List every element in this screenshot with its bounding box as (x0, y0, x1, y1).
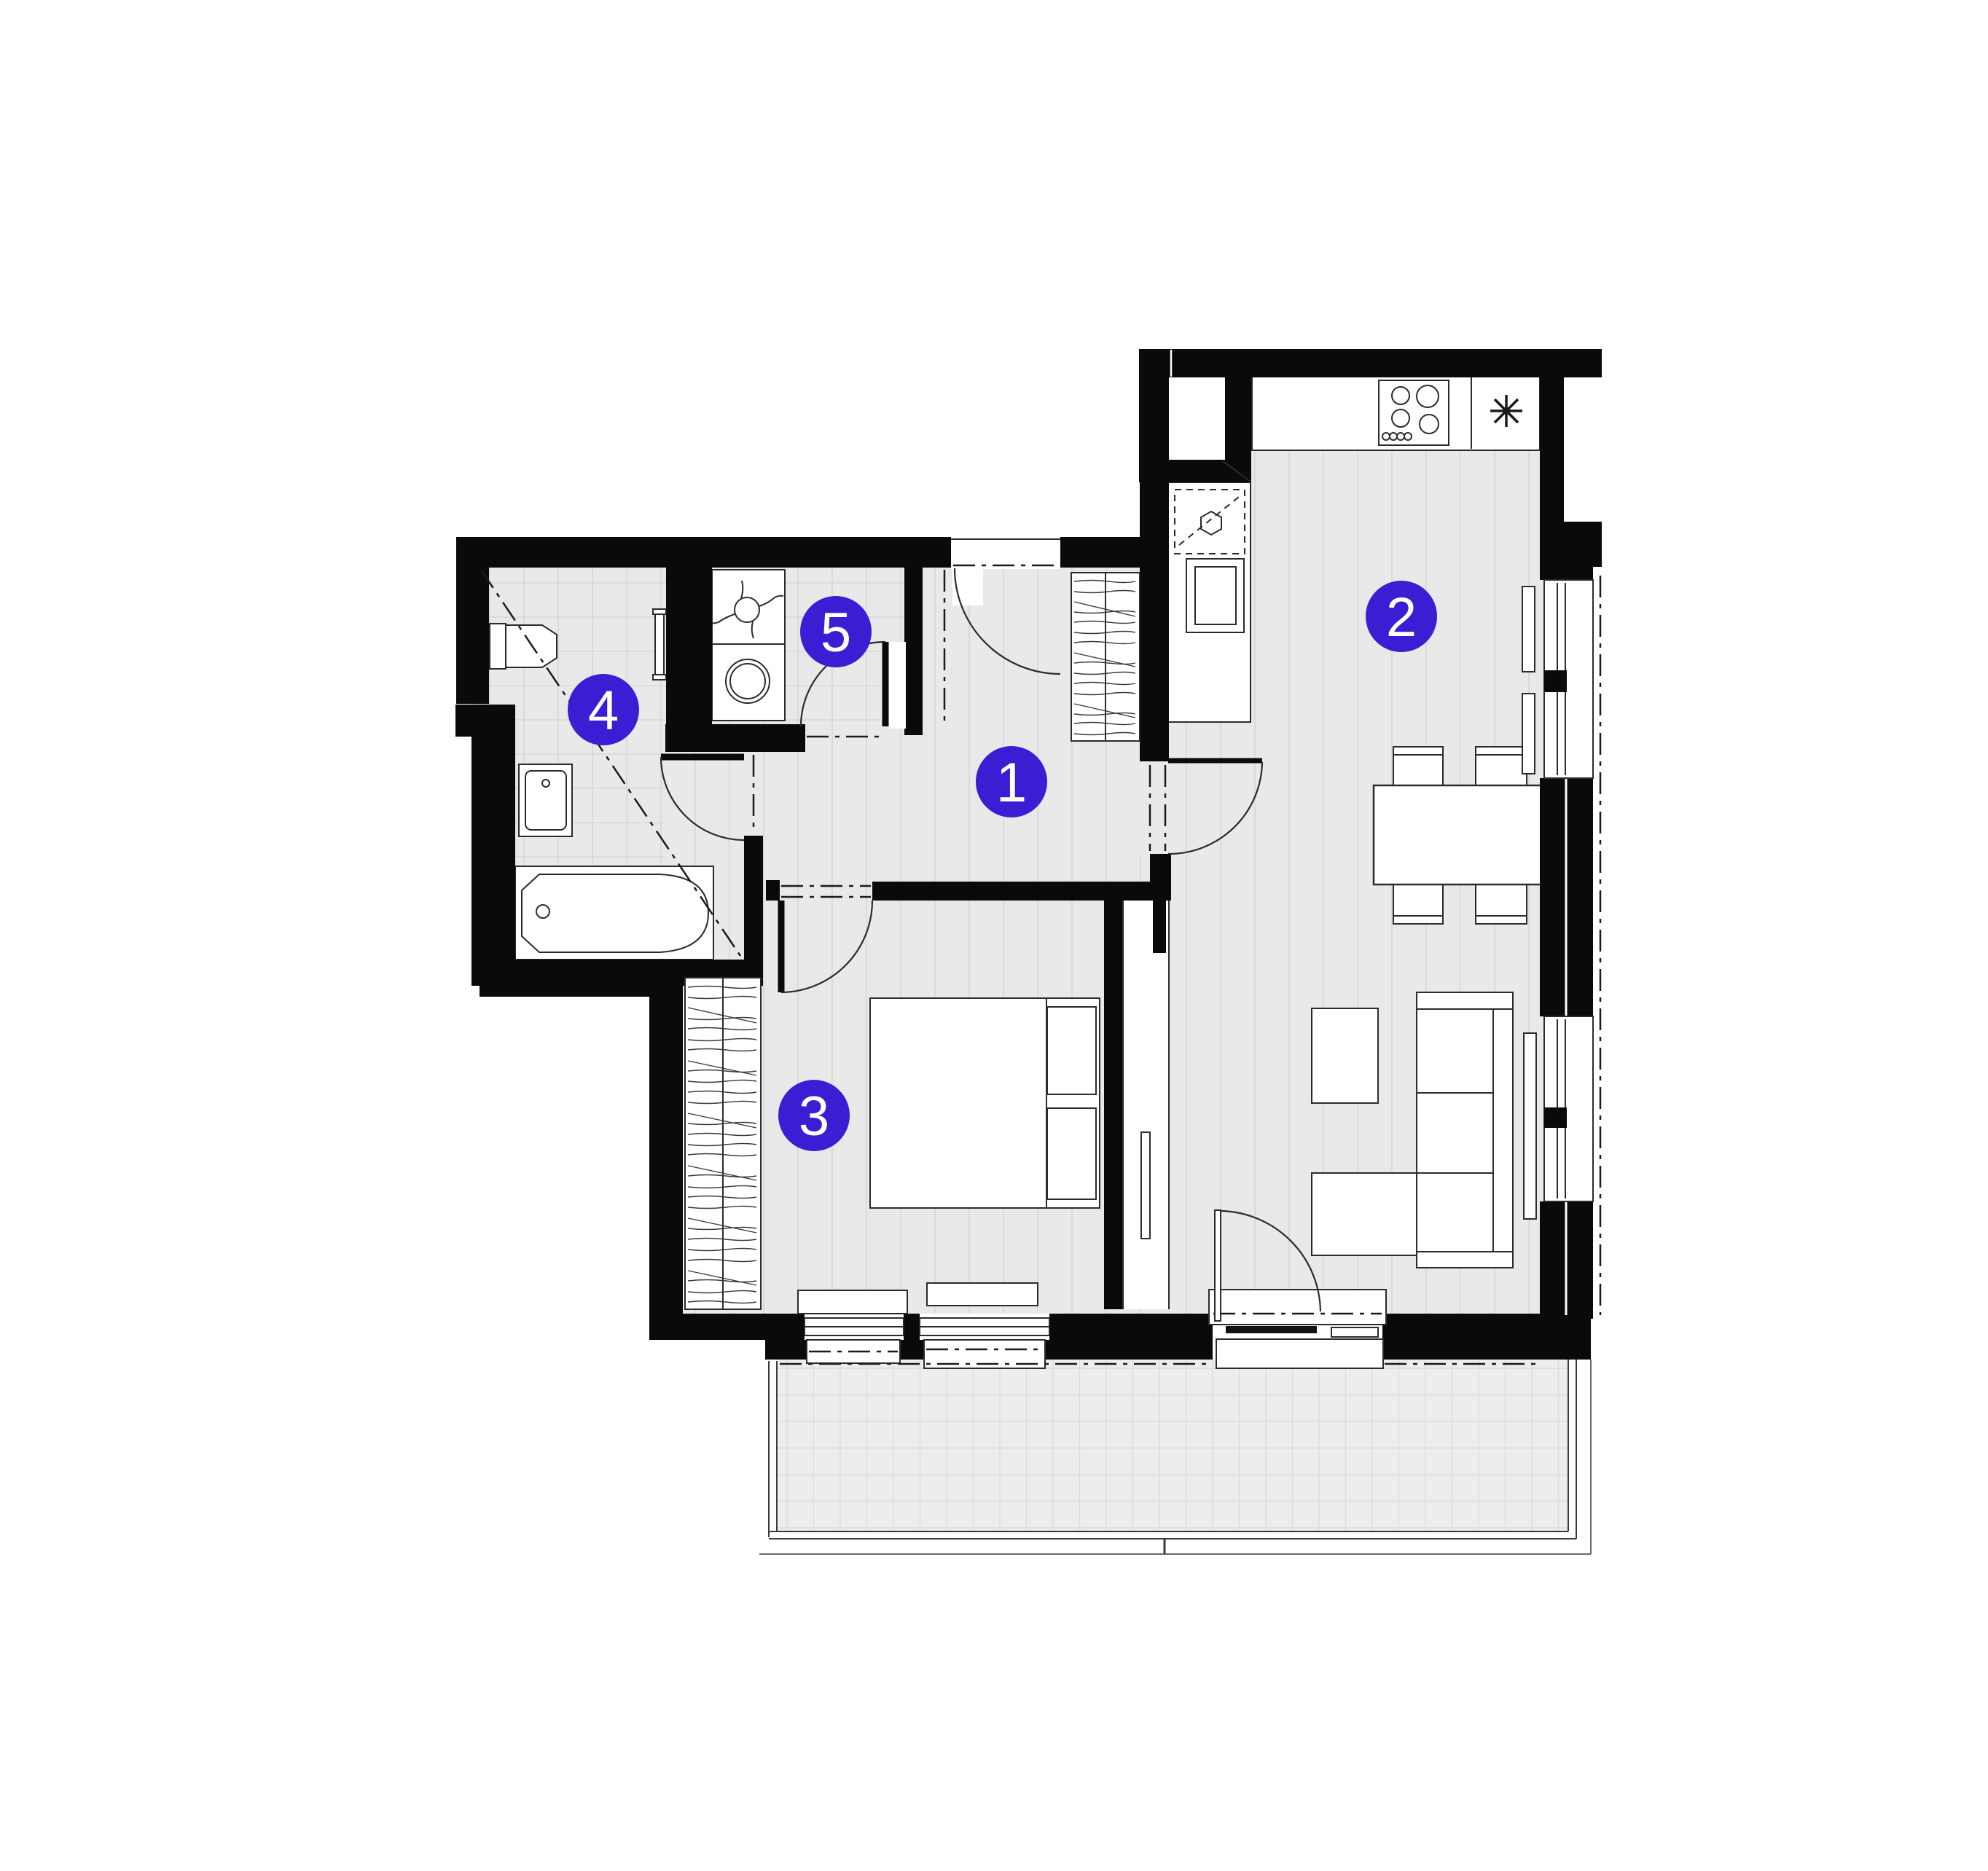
svg-text:2: 2 (1386, 587, 1417, 648)
svg-text:3: 3 (799, 1086, 829, 1148)
svg-text:4: 4 (588, 680, 619, 742)
svg-text:5: 5 (821, 602, 851, 664)
svg-text:1: 1 (996, 752, 1027, 814)
